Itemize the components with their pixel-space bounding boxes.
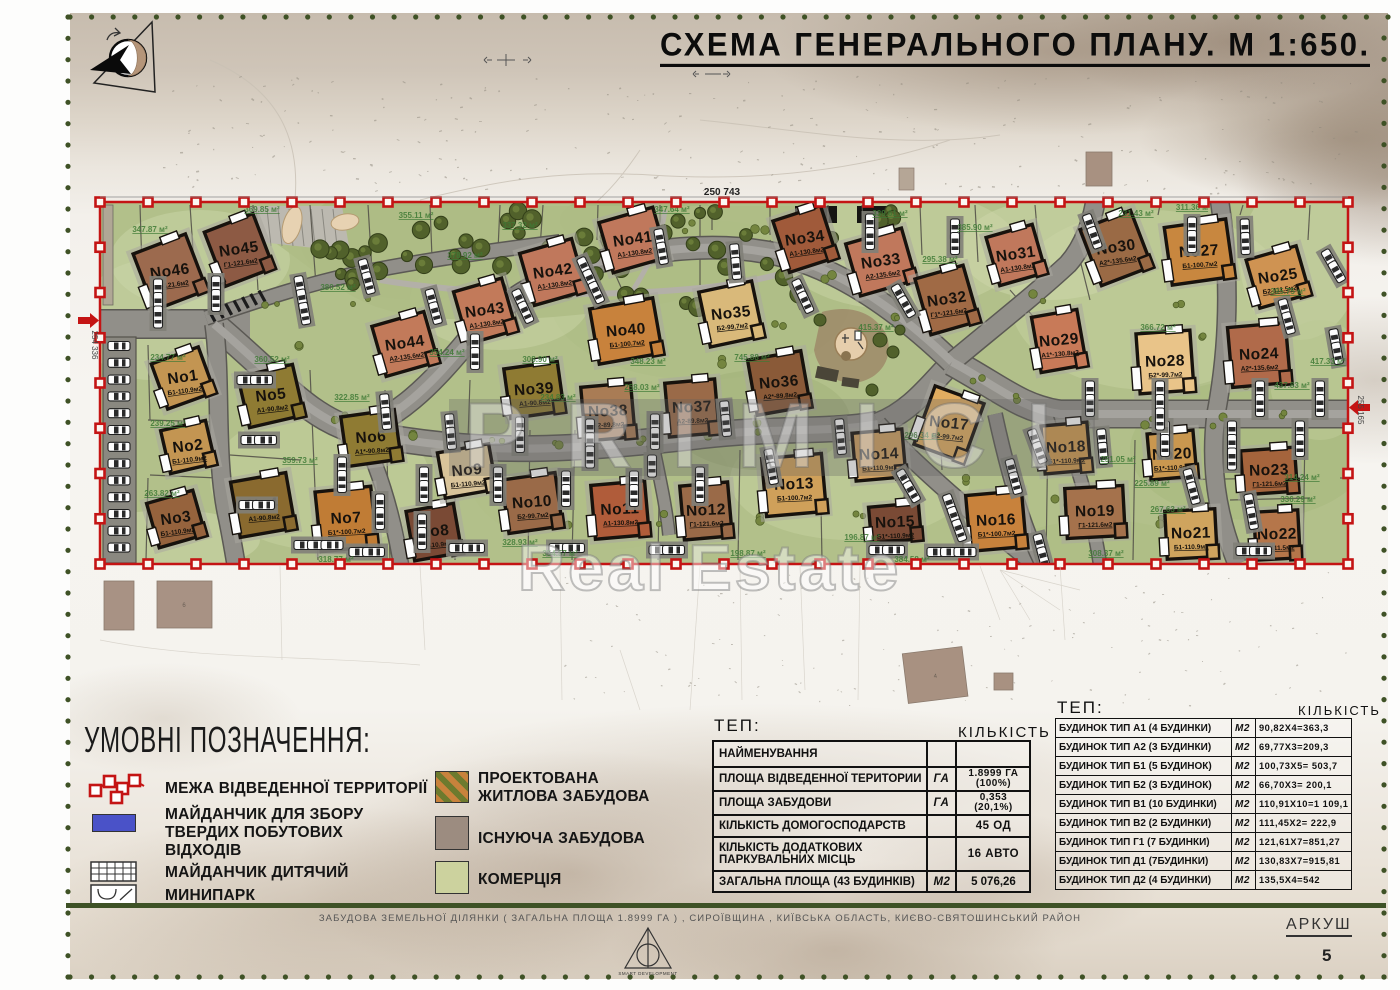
svg-text:No22: No22	[1257, 525, 1297, 543]
svg-text:No29: No29	[1038, 330, 1079, 350]
svg-text:385.90 м²: 385.90 м²	[957, 223, 993, 232]
svg-text:348.23 м²: 348.23 м²	[630, 357, 666, 366]
svg-text:395.75 м²: 395.75 м²	[1270, 287, 1306, 296]
svg-text:No28: No28	[1145, 352, 1185, 370]
svg-text:314.24 м²: 314.24 м²	[1284, 473, 1320, 482]
svg-text:No16: No16	[976, 511, 1017, 530]
svg-text:No24: No24	[1239, 345, 1280, 364]
svg-text:380.52 м²: 380.52 м²	[320, 283, 356, 292]
svg-text:Б1-110.9м2: Б1-110.9м2	[1174, 544, 1209, 552]
svg-text:322.85 м²: 322.85 м²	[334, 393, 370, 402]
svg-text:No7: No7	[330, 509, 362, 528]
svg-text:415.37 м²: 415.37 м²	[858, 323, 894, 332]
svg-text:255 165: 255 165	[1356, 396, 1365, 425]
svg-text:239.25 м²: 239.25 м²	[150, 419, 186, 428]
svg-text:308.37 м²: 308.37 м²	[1088, 549, 1124, 558]
svg-text:SMART DEVELOPMENT: SMART DEVELOPMENT	[618, 971, 677, 976]
svg-text:No10: No10	[511, 493, 552, 513]
svg-text:354.24 м²: 354.24 м²	[429, 348, 465, 357]
svg-text:254 336: 254 336	[90, 331, 99, 360]
svg-text:337.32 м²: 337.32 м²	[502, 221, 538, 230]
svg-text:No40: No40	[605, 320, 646, 340]
svg-text:Г1-121.6м2: Г1-121.6м2	[1252, 480, 1287, 488]
svg-text:417.33 м²: 417.33 м²	[1310, 357, 1346, 366]
svg-text:360.52 м²: 360.52 м²	[254, 355, 290, 364]
svg-text:263.82 м²: 263.82 м²	[144, 489, 180, 498]
svg-text:378.92 м²: 378.92 м²	[447, 251, 483, 260]
svg-text:No21: No21	[1171, 524, 1211, 542]
svg-text:234.77 м²: 234.77 м²	[150, 353, 186, 362]
svg-text:No2: No2	[172, 436, 205, 456]
svg-text:355.11 м²: 355.11 м²	[399, 211, 434, 220]
svg-text:437.83 м²: 437.83 м²	[1274, 381, 1310, 390]
svg-text:No19: No19	[1075, 502, 1115, 520]
svg-text:No23: No23	[1249, 461, 1289, 479]
svg-text:366.72 м²: 366.72 м²	[1140, 323, 1176, 332]
svg-text:347.87 м²: 347.87 м²	[132, 225, 168, 234]
svg-text:339.61 м²: 339.61 м²	[872, 209, 908, 218]
svg-text:336.29 м²: 336.29 м²	[1280, 495, 1316, 504]
svg-text:267.63 м²: 267.63 м²	[1150, 505, 1186, 514]
svg-text:295.38 м²: 295.38 м²	[922, 255, 958, 264]
svg-text:745.88 м²: 745.88 м²	[734, 353, 770, 362]
svg-text:308.90 м²: 308.90 м²	[522, 355, 558, 364]
svg-text:359.73 м²: 359.73 м²	[282, 456, 318, 465]
svg-text:231.43 м²: 231.43 м²	[1118, 209, 1154, 218]
svg-text:250 743: 250 743	[704, 187, 741, 198]
svg-text:Г1-121.6м2: Г1-121.6м2	[1078, 522, 1113, 530]
